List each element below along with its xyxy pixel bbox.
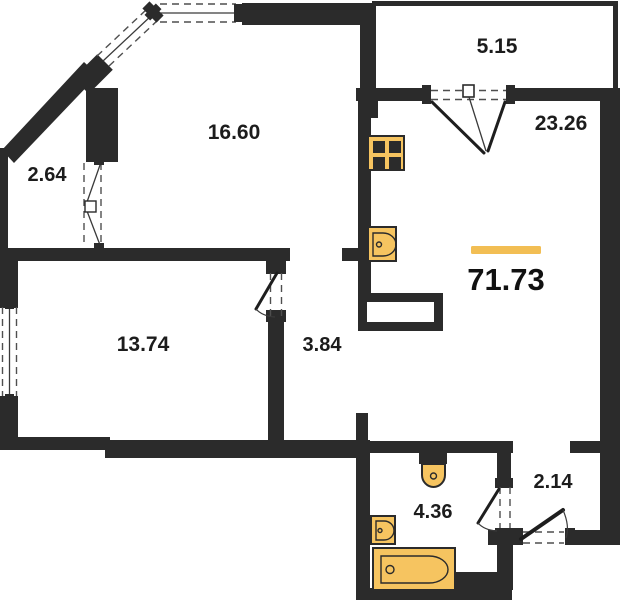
- room-label-loggia-top: 5.15: [477, 35, 518, 58]
- bedroom-window: [3, 302, 17, 401]
- balcony-door: [431, 85, 506, 153]
- kitchen-sink-icon: [368, 227, 396, 261]
- diagonal-window: [97, 0, 166, 66]
- room-label-kitchen-living: 23.26: [535, 112, 588, 135]
- vent-shaft: [358, 293, 443, 331]
- toilet-icon: [419, 447, 447, 487]
- bathroom-door: [478, 487, 510, 531]
- bathtub-icon: [373, 548, 455, 590]
- washbasin-icon: [371, 516, 395, 544]
- wall-pier: [86, 88, 118, 162]
- room-label-living: 16.60: [208, 121, 261, 144]
- folding-door: [84, 159, 104, 249]
- room-label-balcony-left: 2.64: [28, 164, 68, 186]
- total-area-label: 71.73: [467, 262, 545, 297]
- entrance-door: [521, 510, 567, 543]
- room-label-bedroom: 13.74: [117, 333, 170, 356]
- floor-plan: 2.64 16.60 5.15 23.26 13.74 3.84 4.36 2.…: [0, 0, 620, 600]
- room-label-corridor: 3.84: [303, 334, 343, 356]
- top-window: [160, 4, 244, 22]
- room-label-hallway: 2.14: [534, 471, 574, 493]
- room-label-bathroom: 4.36: [414, 501, 453, 523]
- accent-underline: [471, 246, 541, 254]
- stove-icon: [368, 136, 404, 170]
- walls: [0, 1, 620, 600]
